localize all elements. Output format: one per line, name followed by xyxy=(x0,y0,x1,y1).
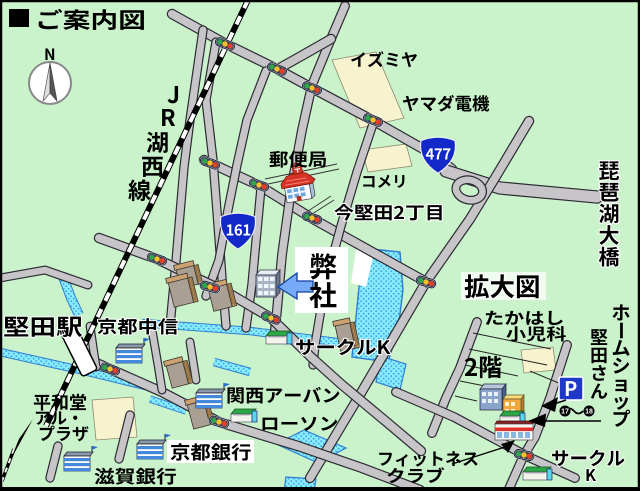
svg-text:17: 17 xyxy=(561,409,569,416)
svg-text:18: 18 xyxy=(585,409,593,416)
